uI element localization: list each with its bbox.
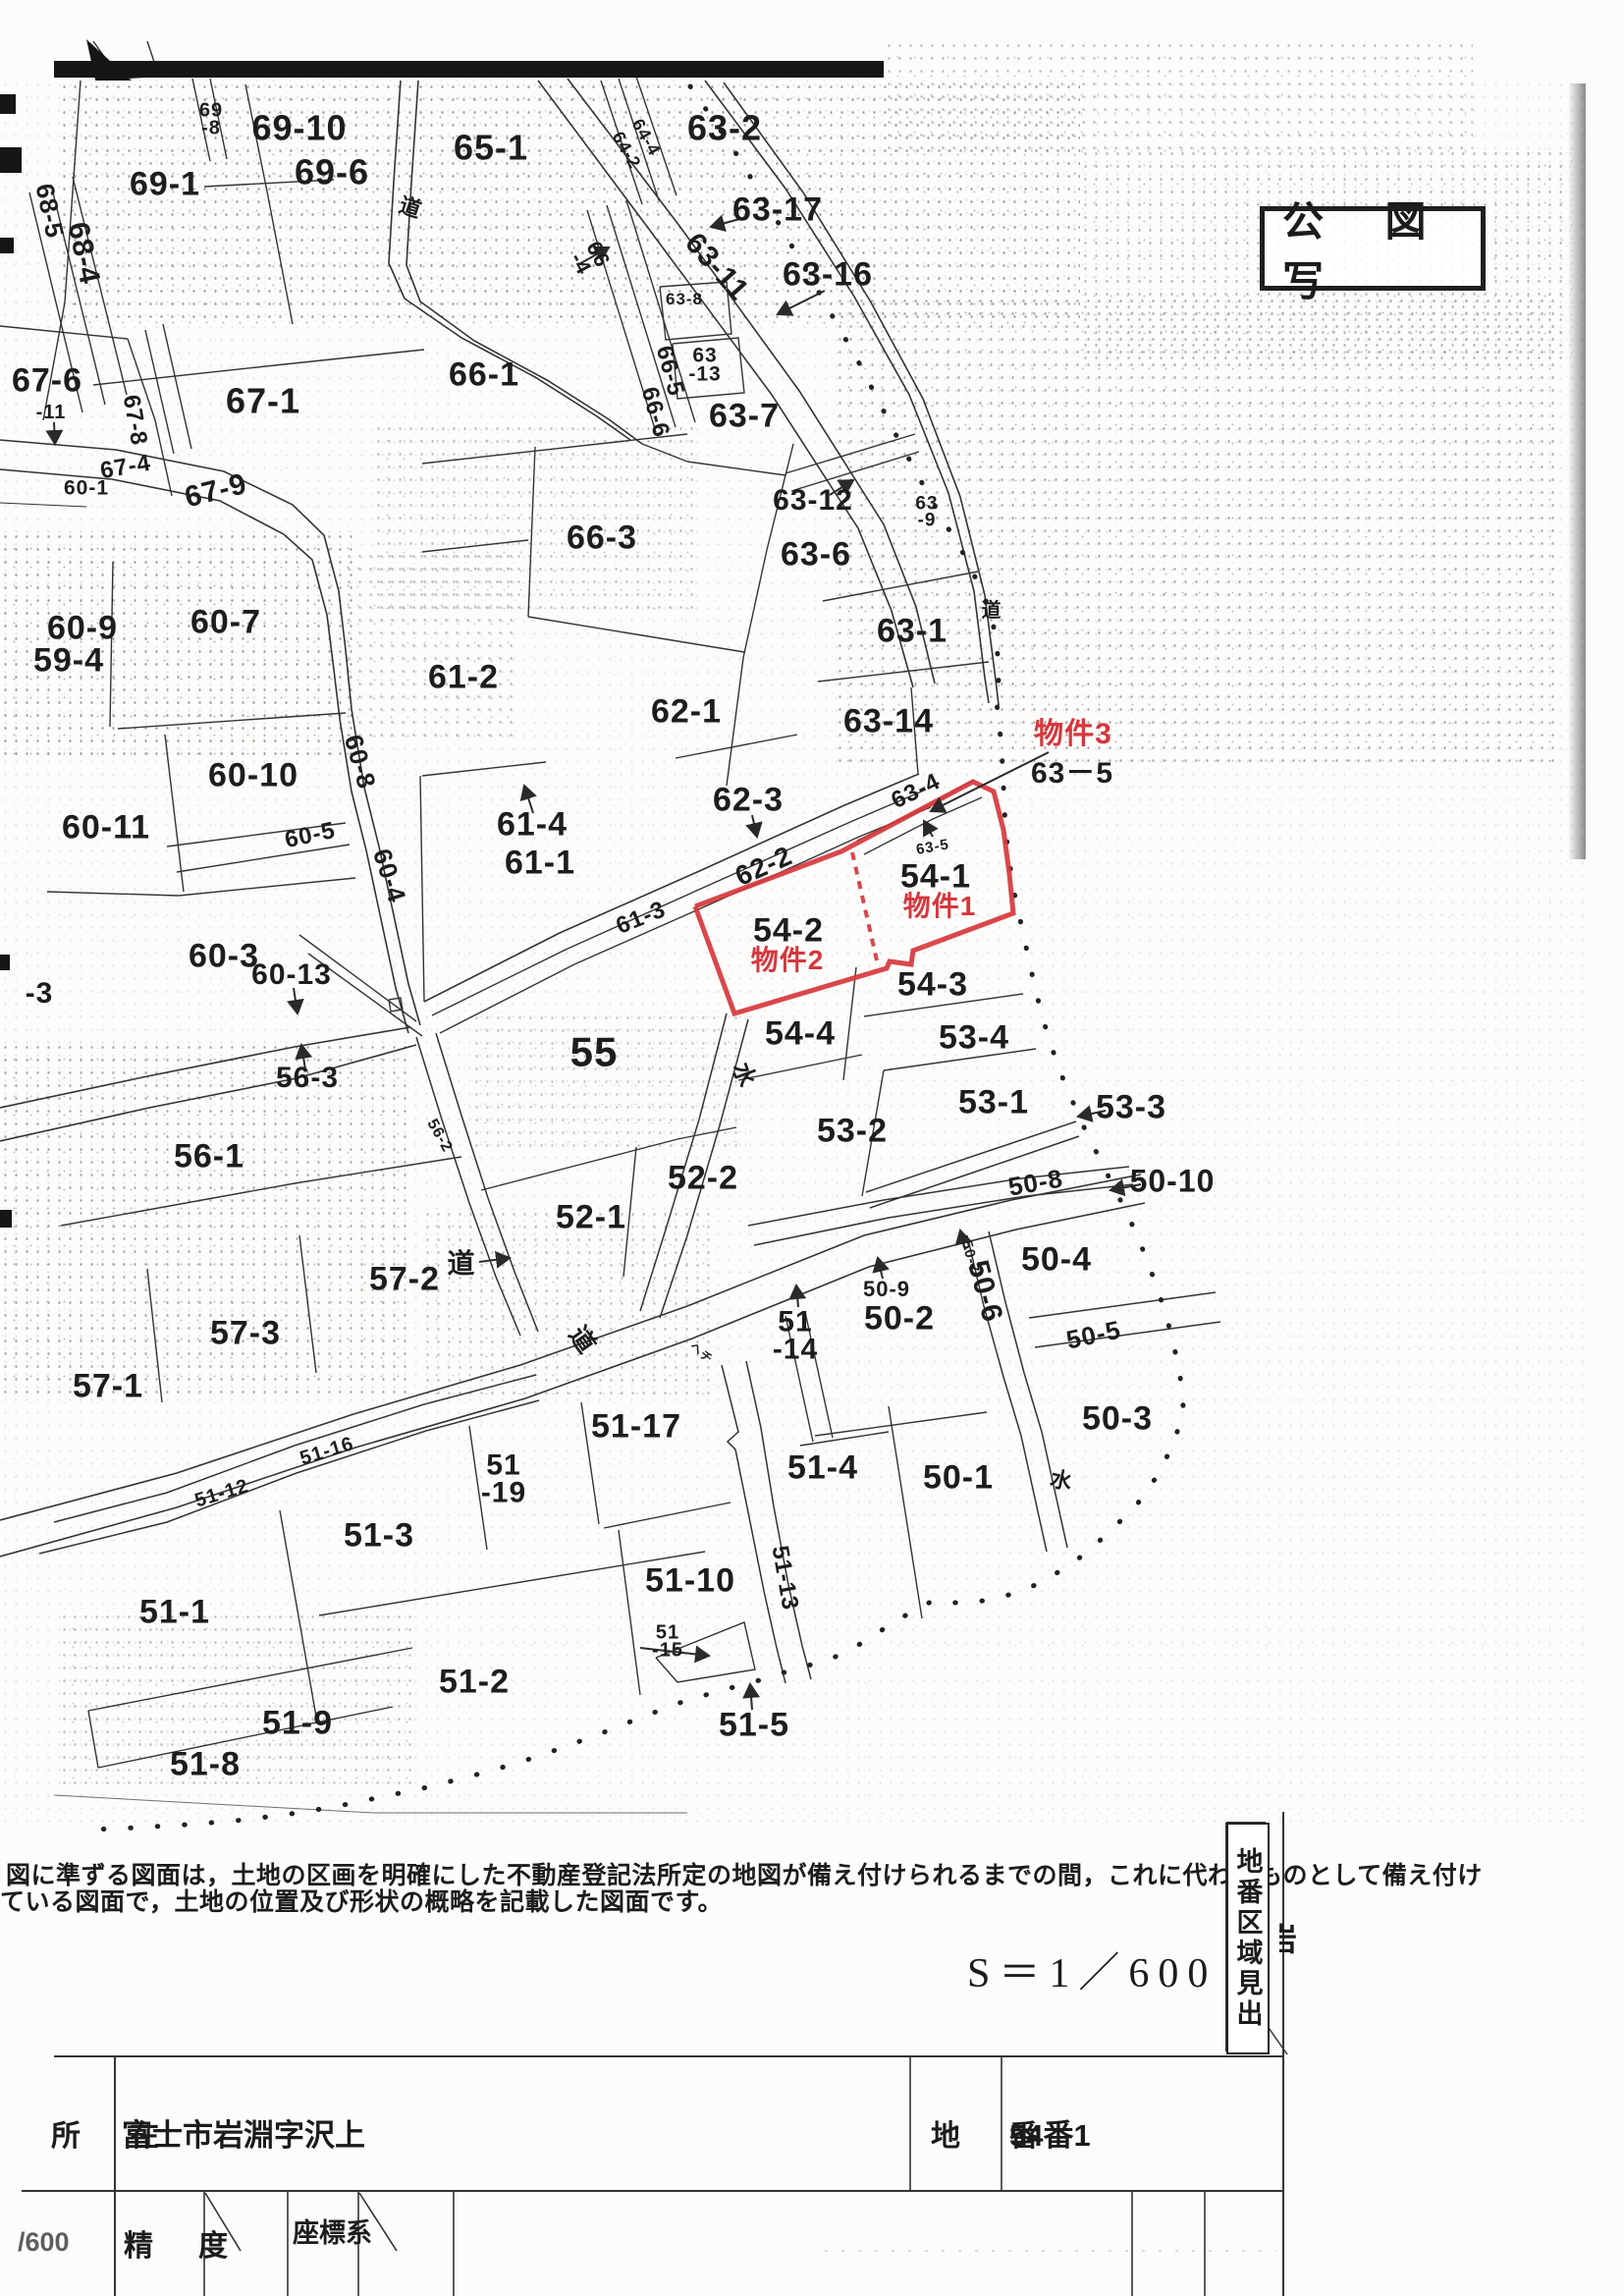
parcel-label: 53-4 bbox=[939, 1022, 1009, 1053]
parcel-label: 57-3 bbox=[210, 1318, 281, 1348]
legal-note-line2: ている図面で，土地の位置及び形状の概略を記載した図面です。 bbox=[0, 1883, 723, 1918]
parcel-label: -3 bbox=[26, 980, 54, 1008]
boundary-line bbox=[0, 1045, 416, 1141]
coordinate-system-label: 座標系 bbox=[293, 2212, 372, 2250]
parcel-label: 59-4 bbox=[33, 645, 104, 676]
parcel-label: 63-7 bbox=[709, 401, 780, 431]
parcel-label: 51-3 bbox=[344, 1520, 414, 1551]
boundary-line bbox=[47, 892, 179, 896]
boundary-line bbox=[39, 1400, 539, 1554]
boundary-line bbox=[722, 1365, 785, 1683]
scan-right-band bbox=[1568, 83, 1586, 859]
scan-blob bbox=[0, 238, 14, 253]
boundary-line bbox=[147, 1269, 162, 1402]
boundary-line bbox=[436, 1033, 538, 1332]
scan-top-band bbox=[54, 61, 884, 78]
boundary-line bbox=[754, 1184, 1133, 1245]
parcel-label: 56-3 bbox=[276, 1065, 339, 1092]
boundary-line bbox=[785, 434, 915, 473]
parcel-label: 51-4 bbox=[787, 1452, 858, 1483]
property-label: 物件1 bbox=[903, 894, 977, 919]
parcel-label: 50-2 bbox=[864, 1303, 935, 1334]
parcel-label: 55 bbox=[570, 1034, 619, 1072]
boundary-line bbox=[88, 1711, 98, 1768]
boundary-line bbox=[815, 1412, 987, 1436]
boundary-line bbox=[420, 776, 424, 1002]
boundary-line bbox=[422, 762, 546, 776]
parcel-label: 50-1 bbox=[923, 1462, 994, 1493]
pointer-arrow bbox=[54, 422, 55, 444]
boundary-line bbox=[568, 79, 935, 683]
boundary-line bbox=[604, 1503, 731, 1528]
property-label: 物件2 bbox=[751, 948, 825, 973]
cadastral-map-page: 69-1069 -869-169-665-168-568-467-6-1167-… bbox=[0, 0, 1624, 2296]
boundary-line bbox=[528, 447, 535, 617]
parcel-label: 60-11 bbox=[62, 812, 150, 843]
parcel-label: 51 -14 bbox=[773, 1308, 818, 1362]
parcel-label: 51 -15 bbox=[652, 1624, 683, 1661]
parcel-label: 63-14 bbox=[843, 706, 934, 737]
boundary-line bbox=[746, 1361, 811, 1679]
parcel-label: 51-1 bbox=[139, 1597, 210, 1627]
parcel-label: 51-17 bbox=[591, 1411, 681, 1442]
boundary-line bbox=[177, 845, 350, 872]
precision-label: 精 度 bbox=[124, 2221, 236, 2265]
property-label: 物件3 bbox=[1034, 721, 1112, 748]
parcel-label: 60-13 bbox=[251, 961, 332, 989]
parcel-label: 69 -8 bbox=[199, 102, 223, 138]
boundary-line bbox=[299, 1235, 316, 1373]
boundary-line bbox=[642, 444, 687, 462]
boundary-line bbox=[179, 878, 355, 896]
parcel-label: 道 bbox=[982, 602, 1002, 620]
parcel-label: 50-10 bbox=[1130, 1167, 1216, 1195]
boundary-line bbox=[687, 462, 785, 475]
parcel-label: 52-1 bbox=[556, 1202, 626, 1232]
boundary-line bbox=[61, 1157, 461, 1226]
parcel-label: 69-6 bbox=[295, 155, 369, 188]
boundary-line bbox=[118, 713, 346, 729]
parcel-label: 60-3 bbox=[189, 941, 259, 971]
boundary-line bbox=[163, 324, 191, 449]
stamp-text: 公 図 写 bbox=[1282, 189, 1481, 308]
parcel-label: 54-4 bbox=[765, 1018, 836, 1049]
pointer-arrow bbox=[924, 821, 933, 837]
parcel-label: 63-12 bbox=[773, 487, 853, 515]
parcel-label: -11 bbox=[36, 404, 67, 421]
parcel-label: 53-3 bbox=[1096, 1092, 1166, 1122]
boundary-line bbox=[619, 1530, 640, 1695]
sidebar-heading-box: 地番区域見出 bbox=[1226, 1823, 1270, 2054]
boundary-line bbox=[724, 82, 999, 705]
parcel-label: 57-2 bbox=[369, 1264, 440, 1294]
parcel-label: 51 -19 bbox=[481, 1451, 526, 1505]
pointer-arrow bbox=[878, 1258, 883, 1279]
boundary-line bbox=[1029, 1292, 1216, 1318]
parcel-label: 63 -13 bbox=[688, 347, 721, 385]
parcel-label: 50-9 bbox=[863, 1280, 910, 1299]
location-value: 富士市岩淵字沢上 bbox=[122, 2110, 365, 2155]
boundary-line bbox=[705, 81, 989, 703]
parcel-label: 50-3 bbox=[1082, 1403, 1153, 1434]
parcel-label: 66-1 bbox=[449, 359, 519, 390]
parcel-label: 67-6 bbox=[12, 365, 82, 396]
parcel-label: 63-1 bbox=[877, 616, 947, 646]
parcel-label: 54-1 bbox=[900, 861, 971, 892]
parcel-label: 56-1 bbox=[174, 1141, 244, 1172]
boundary-line bbox=[818, 662, 989, 682]
parcel-label: 60-10 bbox=[208, 760, 298, 791]
pointer-arrow bbox=[796, 1285, 798, 1307]
parcel-label: 道 bbox=[447, 1251, 475, 1277]
parcel-label: 63－5 bbox=[1031, 760, 1113, 788]
corner-scale-fragment: /600 bbox=[18, 2227, 70, 2258]
boundary-line bbox=[843, 967, 856, 1080]
boundary-line bbox=[676, 735, 797, 758]
boundary-line bbox=[889, 1406, 922, 1618]
highlighted-parcel-divider bbox=[852, 852, 877, 960]
boundary-line bbox=[800, 1432, 889, 1446]
parcel-label: 63-17 bbox=[732, 194, 823, 225]
parcel-label: 60-9 bbox=[47, 613, 118, 643]
parcel-label: 61-2 bbox=[428, 662, 499, 692]
parcel-label: 63-6 bbox=[781, 539, 851, 570]
boundary-line bbox=[165, 735, 184, 892]
parcel-label: 水 bbox=[1049, 1469, 1075, 1494]
parcel-label: 50-4 bbox=[1021, 1244, 1092, 1275]
parcel-label: 51-5 bbox=[719, 1710, 789, 1740]
clipped-edge-character: 岩 bbox=[1279, 1915, 1299, 1958]
boundary-line bbox=[1021, 1436, 1047, 1552]
parcel-label: 65-1 bbox=[454, 131, 528, 163]
boundary-line bbox=[823, 572, 978, 601]
pointer-arrow bbox=[294, 988, 298, 1013]
parcel-label: 62-3 bbox=[713, 785, 784, 815]
parcel-label: 69-10 bbox=[251, 111, 347, 143]
parcel-label: 52-2 bbox=[668, 1163, 738, 1193]
parcel-label: 63-2 bbox=[687, 111, 762, 143]
map-scale: S＝1／600 bbox=[967, 1940, 1217, 1999]
parcel-label: 51-8 bbox=[170, 1749, 241, 1779]
parcel-label: 53-2 bbox=[817, 1116, 888, 1146]
parcel-label: 67-1 bbox=[226, 384, 300, 416]
parcel-label: 63 -9 bbox=[915, 496, 938, 530]
parcel-label: 62-1 bbox=[651, 696, 722, 727]
scan-blob bbox=[0, 147, 22, 173]
parcel-label: 61-4 bbox=[497, 809, 568, 840]
lot-number-value: 54番1 bbox=[1009, 2110, 1091, 2155]
boundary-line bbox=[0, 1027, 410, 1108]
boundary-line bbox=[280, 1510, 316, 1717]
boundary-line bbox=[98, 1707, 393, 1768]
parcel-label: 69-1 bbox=[130, 169, 200, 199]
parcel-label: 61-1 bbox=[505, 847, 575, 878]
parcel-label: 60-1 bbox=[64, 478, 109, 497]
scan-blob bbox=[0, 94, 16, 114]
parcel-label: 60-7 bbox=[190, 607, 261, 637]
parcel-label: 51-10 bbox=[645, 1565, 735, 1596]
parcel-label: 51-9 bbox=[262, 1708, 333, 1738]
scan-blob bbox=[0, 955, 10, 970]
parcel-label: 54-2 bbox=[753, 915, 824, 946]
parcel-label: 63-16 bbox=[783, 259, 873, 290]
parcel-label: 51-2 bbox=[439, 1667, 510, 1697]
parcel-label: 57-1 bbox=[73, 1371, 143, 1401]
pointer-arrow bbox=[479, 1258, 510, 1262]
parcel-label: 54-3 bbox=[897, 969, 968, 1000]
boundary-line bbox=[528, 617, 744, 652]
parcel-label: 63-8 bbox=[666, 292, 703, 307]
parcel-label: 53-1 bbox=[958, 1087, 1029, 1118]
boundary-line bbox=[422, 540, 528, 552]
boundary-line bbox=[0, 503, 86, 507]
sidebar-heading: 地番区域見出 bbox=[1229, 1847, 1268, 2030]
scan-blob bbox=[0, 1210, 12, 1228]
official-copy-stamp: 公 図 写 bbox=[1260, 206, 1486, 291]
pointer-arrow bbox=[778, 291, 825, 314]
boundary-line bbox=[422, 434, 687, 464]
boundary-line bbox=[538, 81, 913, 687]
parcel-label: 66-3 bbox=[567, 522, 637, 553]
boundary-line bbox=[88, 1648, 412, 1711]
